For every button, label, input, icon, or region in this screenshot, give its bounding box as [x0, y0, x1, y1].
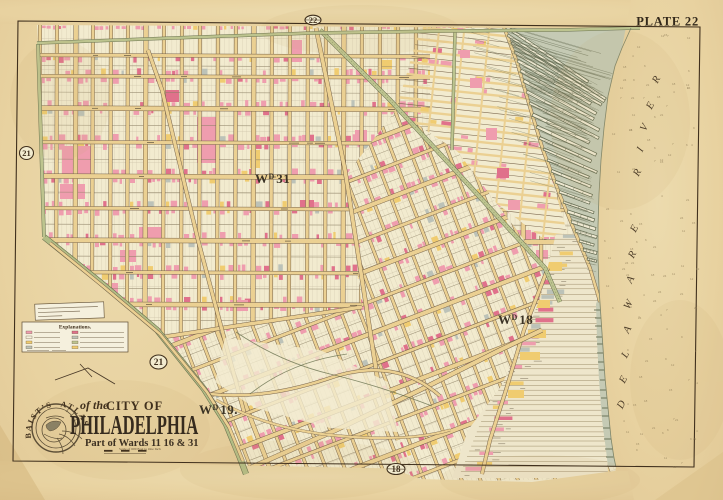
svg-text:18: 18: [672, 82, 676, 86]
svg-text:11: 11: [608, 256, 611, 260]
svg-text:24: 24: [629, 128, 633, 132]
svg-text:11: 11: [626, 430, 629, 434]
svg-text:24: 24: [694, 306, 698, 310]
svg-text:21: 21: [660, 113, 664, 117]
svg-text:21: 21: [22, 148, 31, 158]
svg-text:PLATE 22: PLATE 22: [636, 15, 699, 29]
svg-text:15: 15: [639, 222, 643, 226]
svg-text:11: 11: [682, 229, 685, 233]
svg-text:24: 24: [606, 207, 610, 211]
svg-text:21: 21: [646, 83, 650, 87]
svg-text:PHILADELPHIA: PHILADELPHIA: [70, 411, 199, 440]
svg-text:12: 12: [696, 267, 700, 271]
svg-text:21: 21: [626, 273, 630, 277]
svg-text:21: 21: [154, 358, 164, 368]
svg-text:12: 12: [671, 363, 675, 367]
svg-text:11: 11: [695, 381, 698, 385]
svg-text:18: 18: [657, 95, 661, 99]
svg-text:12: 12: [673, 465, 677, 469]
svg-text:21: 21: [675, 418, 679, 422]
svg-text:12: 12: [690, 277, 694, 281]
svg-text:12: 12: [637, 45, 641, 49]
svg-text:22: 22: [309, 15, 318, 25]
svg-text:11: 11: [681, 264, 684, 268]
svg-text:11: 11: [672, 272, 675, 276]
svg-text:11: 11: [620, 86, 623, 90]
svg-text:21: 21: [680, 292, 684, 296]
svg-text:21: 21: [693, 437, 697, 441]
svg-text:24: 24: [687, 86, 691, 90]
svg-text:21: 21: [631, 96, 635, 100]
svg-text:24: 24: [653, 299, 657, 303]
svg-text:24: 24: [623, 78, 627, 82]
svg-text:15: 15: [669, 388, 673, 392]
svg-text:21: 21: [631, 261, 635, 265]
svg-text:21: 21: [652, 426, 656, 430]
svg-text:18: 18: [623, 65, 627, 69]
svg-text:21: 21: [622, 267, 626, 271]
svg-text:24: 24: [680, 216, 684, 220]
svg-text:11: 11: [655, 80, 658, 84]
svg-text:18: 18: [630, 247, 634, 251]
svg-text:12: 12: [612, 132, 616, 136]
svg-text:15: 15: [649, 337, 653, 341]
svg-text:11: 11: [632, 113, 635, 117]
svg-text:18: 18: [639, 375, 643, 379]
svg-text:15: 15: [636, 442, 640, 446]
svg-text:of the: of the: [80, 398, 109, 412]
svg-text:11: 11: [617, 170, 620, 174]
svg-text:21: 21: [620, 219, 624, 223]
svg-text:18: 18: [644, 399, 648, 403]
svg-text:15: 15: [633, 403, 637, 407]
svg-text:21: 21: [653, 245, 657, 249]
svg-text:18: 18: [392, 464, 402, 474]
svg-text:15: 15: [664, 33, 668, 37]
svg-text:11: 11: [664, 456, 667, 460]
svg-text:15: 15: [692, 221, 696, 225]
svg-text:18: 18: [651, 273, 655, 277]
svg-text:24: 24: [625, 261, 629, 265]
svg-text:21: 21: [645, 359, 649, 363]
svg-text:12: 12: [668, 153, 672, 157]
svg-text:24: 24: [658, 290, 662, 294]
svg-text:24: 24: [663, 274, 667, 278]
svg-text:21: 21: [686, 198, 690, 202]
svg-text:18: 18: [647, 138, 651, 142]
svg-text:24: 24: [632, 167, 636, 171]
svg-text:12: 12: [687, 36, 691, 40]
svg-text:12: 12: [606, 284, 610, 288]
svg-text:Explanations.: Explanations.: [59, 325, 92, 331]
svg-text:11: 11: [640, 432, 643, 436]
svg-text:15: 15: [660, 160, 664, 164]
